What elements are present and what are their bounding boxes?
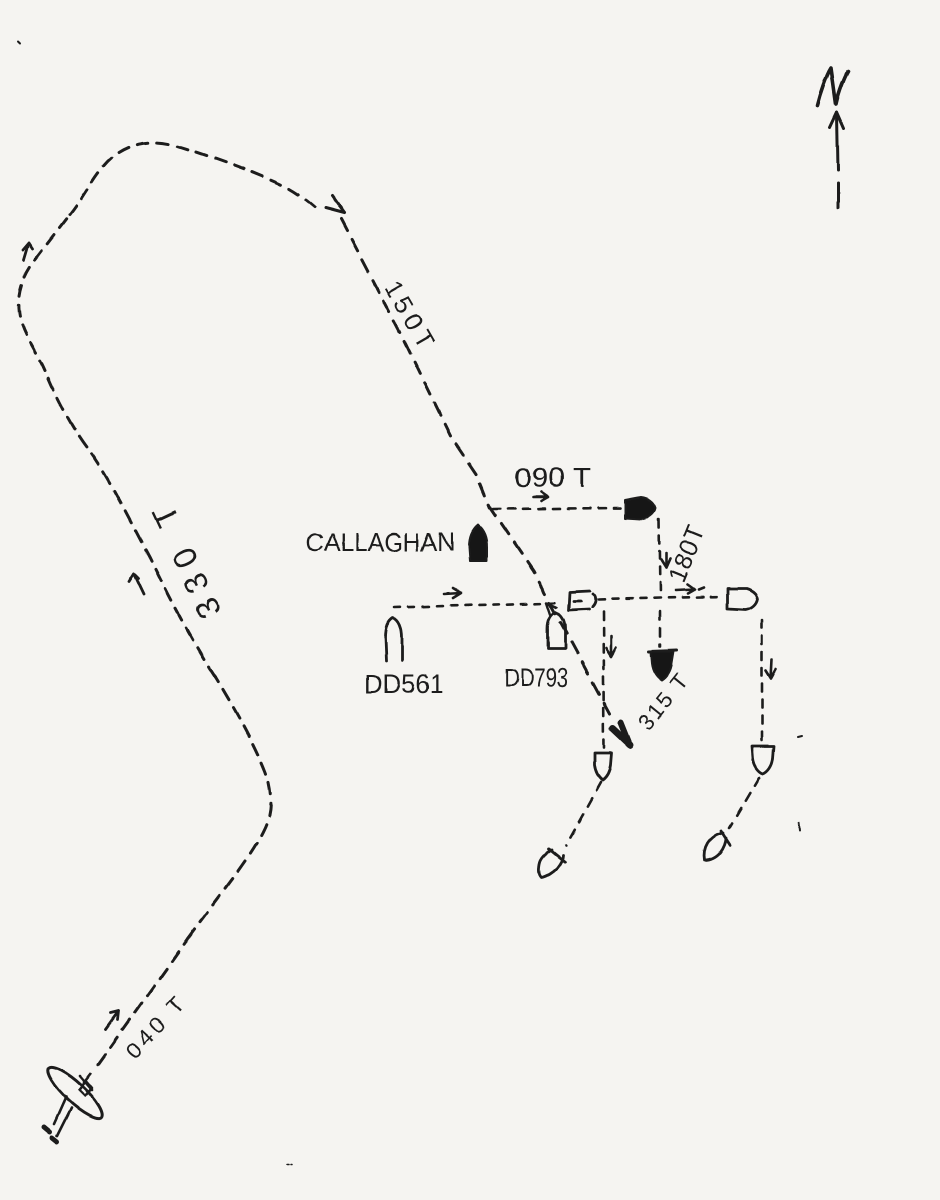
svg-text:CALLAGHAN: CALLAGHAN	[306, 527, 455, 557]
svg-text:DD793: DD793	[504, 663, 568, 693]
svg-text:090 T: 090 T	[514, 462, 591, 493]
svg-text:DD561: DD561	[364, 669, 444, 699]
